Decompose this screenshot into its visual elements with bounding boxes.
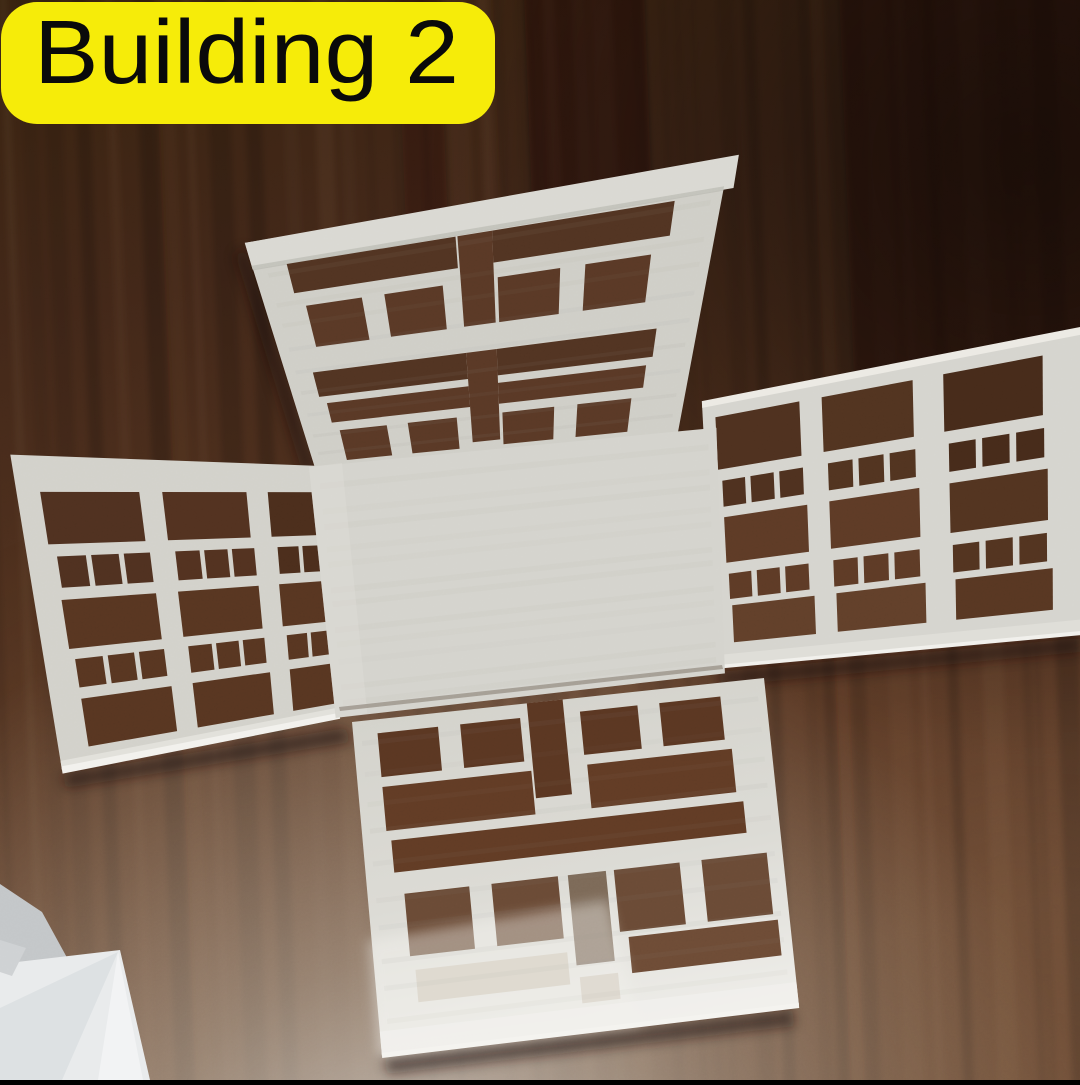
svg-text:Building 2: Building 2 — [34, 3, 459, 103]
